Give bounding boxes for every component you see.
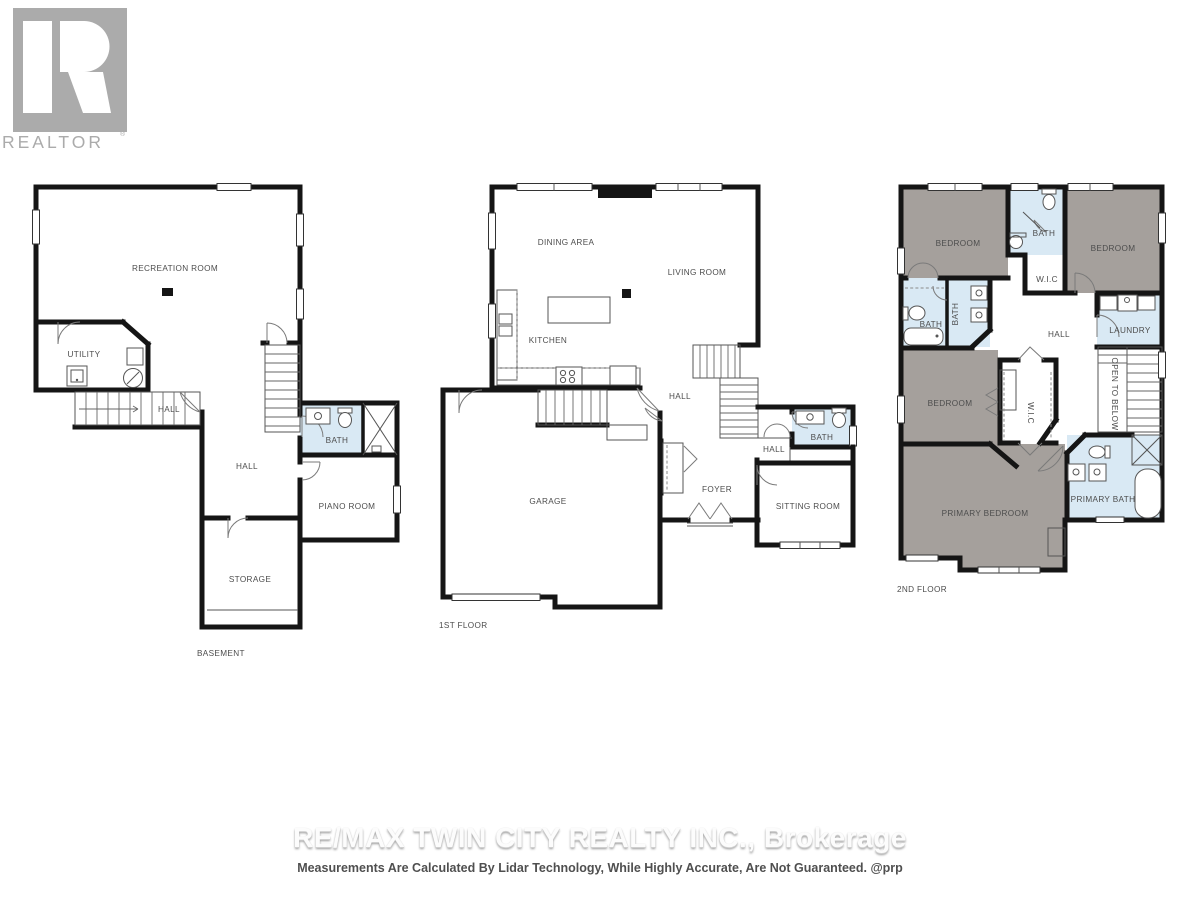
garage-hall-door xyxy=(637,388,659,411)
window xyxy=(656,184,722,191)
window xyxy=(297,289,304,319)
room-label-utility: UTILITY xyxy=(68,350,101,359)
room-label-hall: HALL xyxy=(236,462,258,471)
realtor-logo: REALTOR ® xyxy=(2,8,127,152)
room-label-bedroom-mid: BEDROOM xyxy=(928,399,973,408)
room-label-wic-mid: W.I.C xyxy=(1026,402,1035,424)
room-label-kitchen: KITCHEN xyxy=(529,336,567,345)
room-label-bath: BATH xyxy=(326,436,349,445)
realtor-logo-r-bowl xyxy=(60,21,110,72)
basement-hall-door xyxy=(180,392,200,412)
room-label-hall-upper: HALL xyxy=(669,392,691,401)
room-label-laundry: LAUNDRY xyxy=(1109,326,1151,335)
room-label-sitting: SITTING ROOM xyxy=(776,502,840,511)
floorplan-sheet: REALTOR ® xyxy=(0,0,1200,900)
foyer-closet xyxy=(663,443,697,493)
window xyxy=(297,214,304,246)
room-label-hall2: HALL xyxy=(1048,330,1070,339)
window xyxy=(394,486,401,513)
kitchen-island xyxy=(548,297,610,323)
window xyxy=(780,542,840,549)
corridor-double-door xyxy=(764,424,790,437)
room-label-bedroom-tr: BEDROOM xyxy=(1091,244,1136,253)
basement-plan: RECREATION ROOM UTILITY HALL HALL BATH P… xyxy=(33,184,401,659)
garage-entry-door xyxy=(459,390,482,413)
first-floor-plan: DINING AREA LIVING ROOM KITCHEN HALL GAR… xyxy=(439,184,857,631)
window xyxy=(1096,517,1124,523)
second-stairs xyxy=(1098,347,1162,432)
window xyxy=(452,594,540,601)
window xyxy=(898,396,905,423)
second-floor-plan: BEDROOM BATH BEDROOM W.I.C BATH BATH HAL… xyxy=(897,184,1166,595)
basement-storage-door xyxy=(228,518,248,538)
front-door xyxy=(687,503,733,526)
sitting-door xyxy=(757,465,777,485)
brokerage-watermark: RE/MAX TWIN CITY REALTY INC., Brokerage xyxy=(0,822,1200,854)
window xyxy=(850,426,857,446)
room-label-dining: DINING AREA xyxy=(538,238,595,247)
window xyxy=(489,304,496,338)
basement-utility-door xyxy=(58,322,80,344)
room-label-garage: GARAGE xyxy=(529,497,566,506)
bedroom-mid xyxy=(901,350,998,444)
room-label-foyer: FOYER xyxy=(702,485,732,494)
kitchen-fixtures xyxy=(497,290,640,385)
room-label-primary-bath: PRIMARY BATH xyxy=(1071,495,1136,504)
garage-basement-stairs xyxy=(538,390,647,440)
window xyxy=(1011,184,1038,191)
realtor-logo-text: REALTOR xyxy=(2,132,104,152)
window xyxy=(217,184,251,191)
wic-mid-interior xyxy=(1000,370,1051,440)
realtor-logo-r-stem xyxy=(23,21,52,113)
room-label-wic-top: W.I.C xyxy=(1036,275,1058,284)
basement-stairs-upper xyxy=(265,345,300,432)
floor-label-first: 1ST FLOOR xyxy=(439,621,488,630)
basement-piano-door xyxy=(302,462,320,480)
measurement-disclaimer: Measurements Are Calculated By Lidar Tec… xyxy=(0,861,1200,875)
room-label-living: LIVING ROOM xyxy=(668,268,726,277)
room-label-hall-stairs: HALL xyxy=(158,405,180,414)
primary-bedroom xyxy=(901,444,1065,570)
basement-rec-door xyxy=(267,323,287,343)
window xyxy=(898,248,905,274)
room-label-bedroom-tl: BEDROOM xyxy=(936,239,981,248)
room-label-bath-left-h: BATH xyxy=(920,320,943,329)
main-stairs xyxy=(693,345,758,438)
laundry-fixtures xyxy=(1100,295,1155,311)
room-label-hall-lower: HALL xyxy=(763,445,785,454)
window xyxy=(1159,352,1166,378)
window xyxy=(1159,213,1166,243)
wic-mid-top-door xyxy=(1018,347,1044,360)
column-post xyxy=(622,289,631,298)
window xyxy=(978,567,1040,573)
room-label-open-below: OPEN TO BELOW xyxy=(1110,358,1119,431)
floor-label-basement: BASEMENT xyxy=(197,649,245,658)
room-label-primary-bedroom: PRIMARY BEDROOM xyxy=(942,509,1029,518)
room-label-recreation: RECREATION ROOM xyxy=(132,264,218,273)
window xyxy=(33,210,40,244)
room-label-piano: PIANO ROOM xyxy=(319,502,376,511)
registered-trademark-icon: ® xyxy=(120,130,126,138)
window xyxy=(906,555,938,561)
room-label-bath-top: BATH xyxy=(1033,229,1056,238)
floorplan-drawing: REALTOR ® xyxy=(0,0,1200,900)
sitting-walls xyxy=(757,447,853,545)
window xyxy=(489,213,496,249)
floor-post xyxy=(162,288,173,296)
fireplace xyxy=(598,185,652,198)
room-label-storage: STORAGE xyxy=(229,575,272,584)
floor-label-second: 2ND FLOOR xyxy=(897,585,947,594)
room-label-bath1: BATH xyxy=(811,433,834,442)
room-label-bath-left-v: BATH xyxy=(951,303,960,326)
bedroom-tr xyxy=(1065,187,1162,293)
